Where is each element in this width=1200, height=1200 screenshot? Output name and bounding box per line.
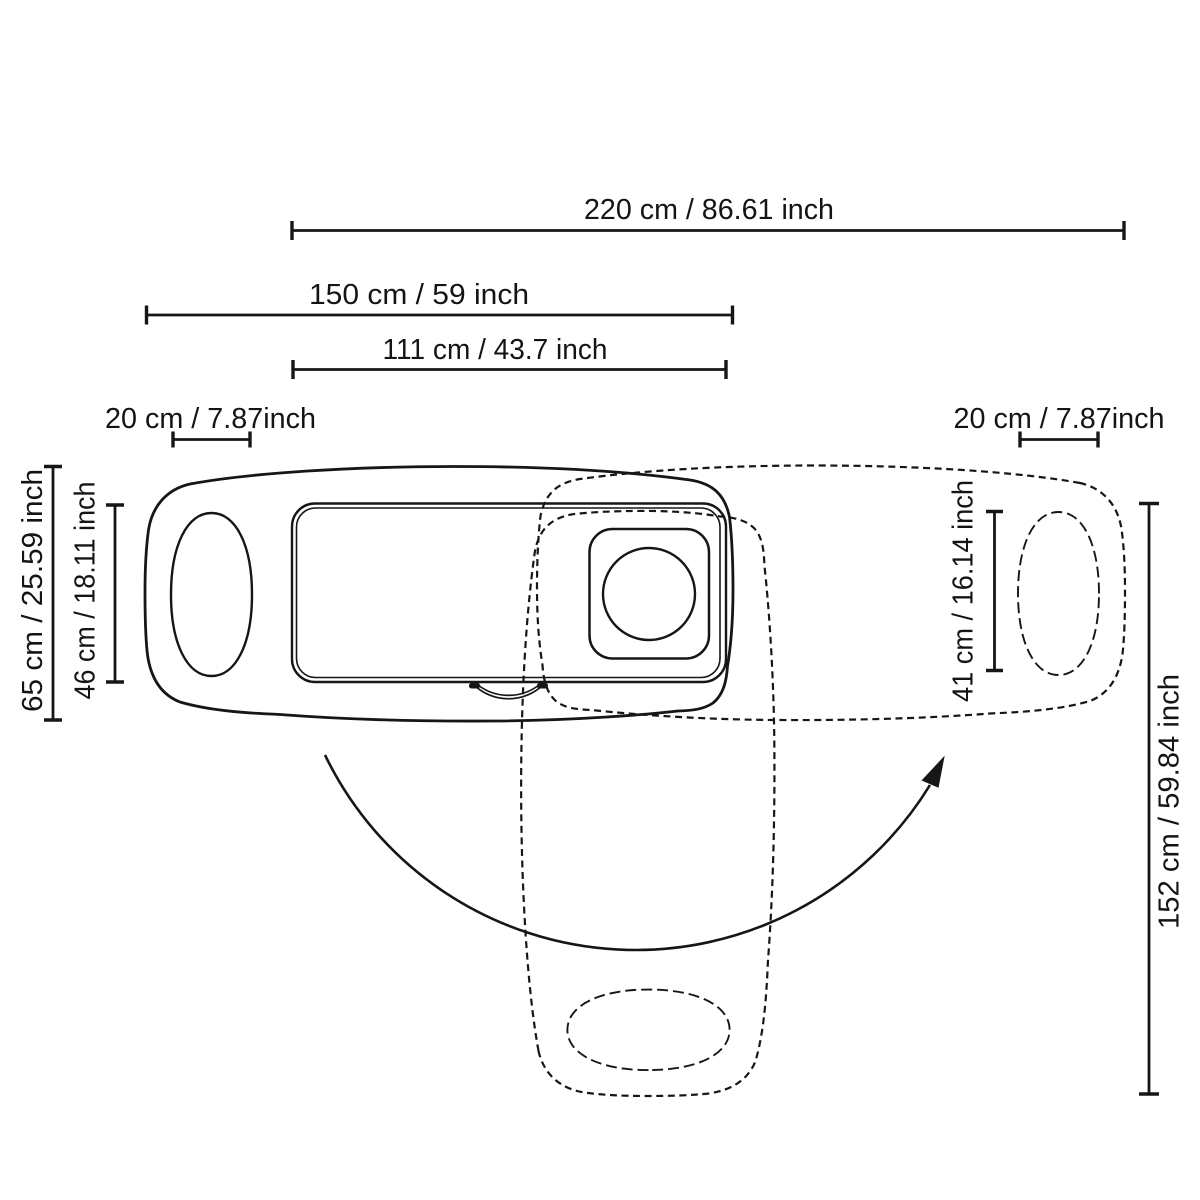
svg-text:41 cm / 16.14 inch: 41 cm / 16.14 inch — [948, 480, 980, 702]
svg-text:20 cm / 7.87inch: 20 cm / 7.87inch — [954, 403, 1165, 435]
svg-text:46 cm / 18.11 inch: 46 cm / 18.11 inch — [70, 482, 102, 700]
svg-text:20 cm / 7.87inch: 20 cm / 7.87inch — [105, 403, 316, 435]
svg-text:150 cm / 59 inch: 150 cm / 59 inch — [309, 279, 529, 311]
svg-text:152 cm / 59.84 inch: 152 cm / 59.84 inch — [1154, 674, 1186, 929]
svg-text:111 cm / 43.7 inch: 111 cm / 43.7 inch — [383, 334, 608, 366]
svg-text:65 cm / 25.59 inch: 65 cm / 25.59 inch — [17, 469, 49, 712]
svg-text:220 cm / 86.61 inch: 220 cm / 86.61 inch — [584, 194, 834, 226]
